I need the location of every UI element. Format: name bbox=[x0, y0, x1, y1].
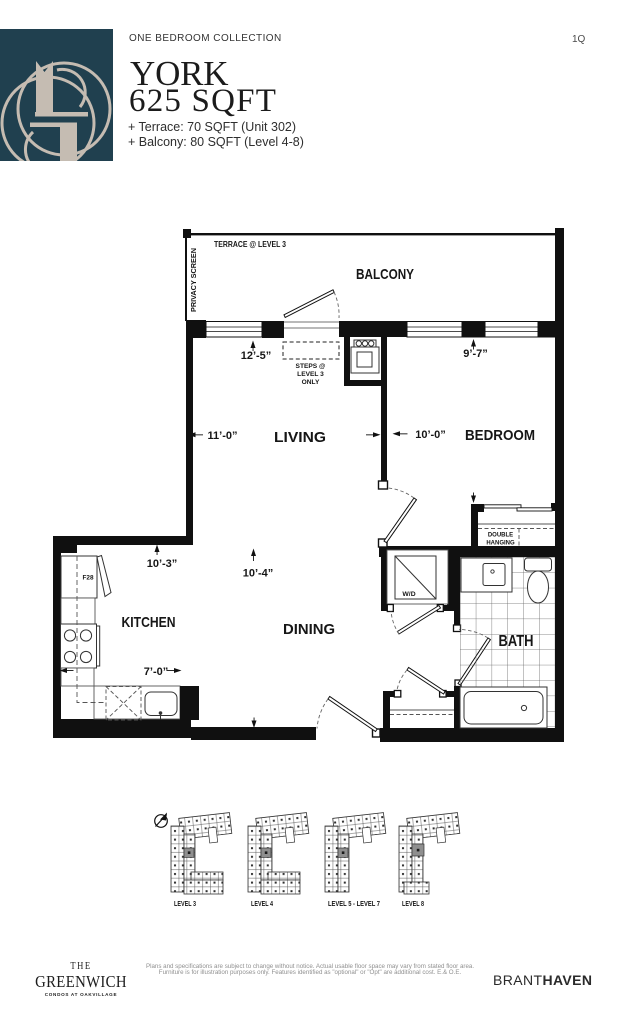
svg-text:LEVEL 8: LEVEL 8 bbox=[402, 899, 424, 908]
svg-text:LEVEL 5 - LEVEL 7: LEVEL 5 - LEVEL 7 bbox=[328, 899, 380, 908]
svg-text:10’-3”: 10’-3” bbox=[147, 558, 178, 570]
svg-text:STEPS @: STEPS @ bbox=[296, 363, 326, 370]
svg-text:TERRACE @ LEVEL 3: TERRACE @ LEVEL 3 bbox=[214, 240, 286, 249]
svg-text:LEVEL 3: LEVEL 3 bbox=[297, 371, 324, 378]
svg-text:11’-0”: 11’-0” bbox=[208, 430, 238, 442]
svg-text:BATH: BATH bbox=[499, 633, 534, 650]
svg-text:LEVEL 4: LEVEL 4 bbox=[251, 899, 274, 908]
svg-text:DOUBLE: DOUBLE bbox=[488, 533, 513, 539]
svg-text:9’-7”: 9’-7” bbox=[463, 348, 487, 360]
svg-text:ONLY: ONLY bbox=[302, 379, 320, 386]
svg-text:BEDROOM: BEDROOM bbox=[465, 427, 535, 444]
svg-text:12’-5”: 12’-5” bbox=[241, 350, 272, 362]
svg-text:KITCHEN: KITCHEN bbox=[122, 614, 176, 631]
svg-text:10’-0”: 10’-0” bbox=[415, 429, 446, 441]
svg-text:LIVING: LIVING bbox=[274, 429, 326, 446]
svg-text:7’-0”: 7’-0” bbox=[144, 666, 168, 678]
svg-text:LEVEL 3: LEVEL 3 bbox=[174, 899, 196, 908]
svg-text:DINING: DINING bbox=[283, 621, 335, 638]
svg-text:BALCONY: BALCONY bbox=[356, 266, 414, 283]
svg-text:W/D: W/D bbox=[402, 591, 415, 598]
svg-text:HANGING: HANGING bbox=[486, 541, 515, 547]
svg-text:PRIVACY SCREEN: PRIVACY SCREEN bbox=[189, 248, 198, 312]
svg-text:10’-4”: 10’-4” bbox=[243, 568, 274, 580]
svg-text:F28: F28 bbox=[82, 575, 93, 582]
